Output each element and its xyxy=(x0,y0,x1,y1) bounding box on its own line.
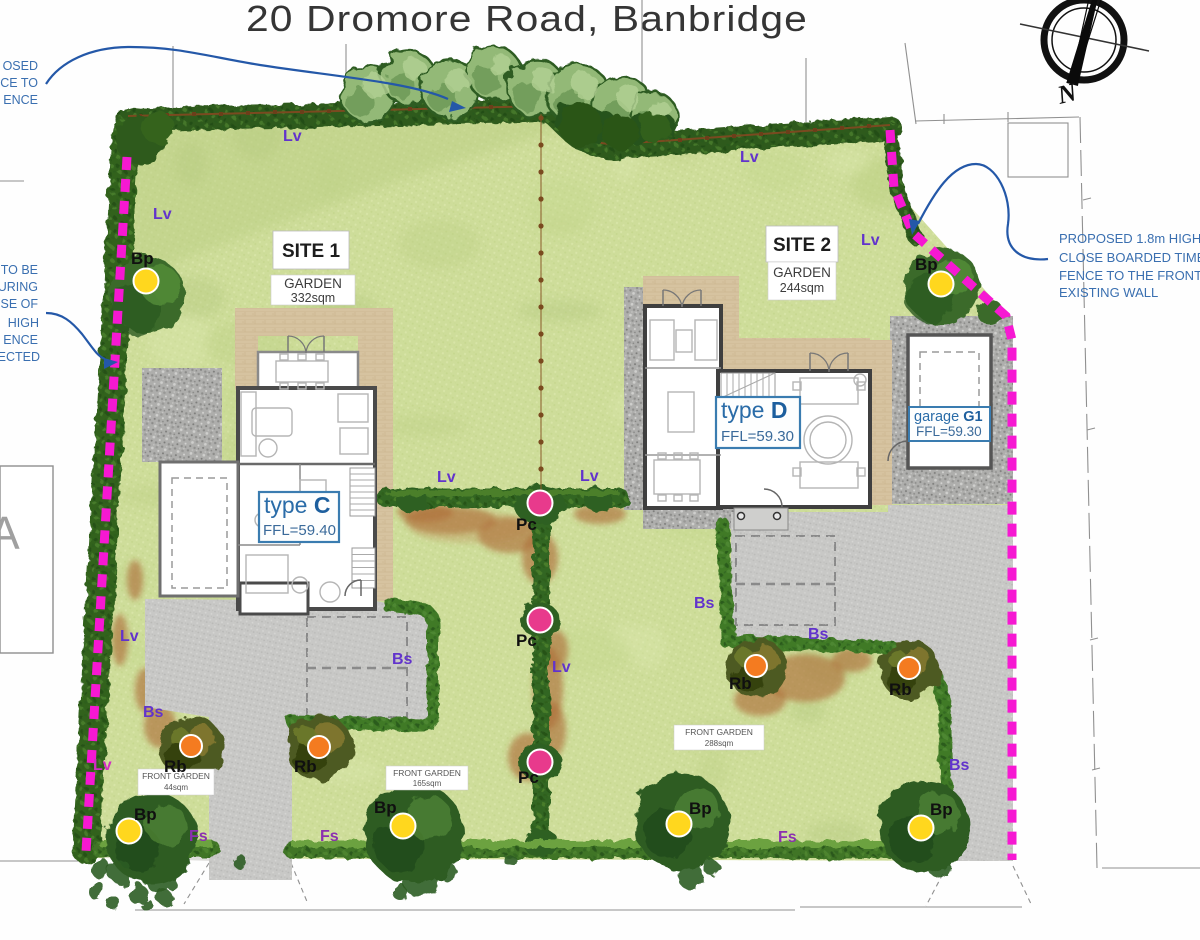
svg-text:Bp: Bp xyxy=(915,255,938,274)
svg-text:ENCE: ENCE xyxy=(3,93,38,107)
svg-text:CE TO: CE TO xyxy=(0,76,38,90)
svg-text:garage G1: garage G1 xyxy=(914,409,983,425)
svg-text:ECTED: ECTED xyxy=(0,350,40,364)
svg-text:Lv: Lv xyxy=(580,468,599,485)
svg-text:Fs: Fs xyxy=(189,828,208,845)
svg-text:Lv: Lv xyxy=(93,757,112,774)
svg-text:20 Dromore Road, Banbridge: 20 Dromore Road, Banbridge xyxy=(246,0,808,39)
svg-text:TO BE: TO BE xyxy=(1,263,38,277)
svg-text:Bp: Bp xyxy=(134,805,157,824)
svg-text:Pc: Pc xyxy=(516,515,537,534)
svg-text:Fs: Fs xyxy=(320,828,339,845)
svg-text:URING: URING xyxy=(0,280,38,294)
svg-text:Rb: Rb xyxy=(164,757,187,776)
svg-text:SITE 1: SITE 1 xyxy=(282,241,341,262)
svg-text:CLOSE BOARDED TIMBER: CLOSE BOARDED TIMBER xyxy=(1059,250,1200,265)
svg-text:SE OF: SE OF xyxy=(0,297,38,311)
svg-text:type C: type C xyxy=(264,492,331,518)
svg-text:Rb: Rb xyxy=(729,674,752,693)
svg-text:Pc: Pc xyxy=(518,768,539,787)
svg-text:FFL=59.30: FFL=59.30 xyxy=(721,428,794,445)
svg-text:Lv: Lv xyxy=(552,659,571,676)
svg-text:Bp: Bp xyxy=(689,799,712,818)
svg-text:Rb: Rb xyxy=(889,680,912,699)
svg-text:Bp: Bp xyxy=(374,798,397,817)
svg-text:Lv: Lv xyxy=(283,128,302,145)
svg-text:244sqm: 244sqm xyxy=(780,281,824,295)
svg-text:Bs: Bs xyxy=(694,595,715,612)
svg-text:PROPOSED 1.8m HIGH: PROPOSED 1.8m HIGH xyxy=(1059,231,1200,246)
svg-text:GARDEN: GARDEN xyxy=(284,276,342,291)
svg-text:165sqm: 165sqm xyxy=(413,779,442,788)
svg-text:Lv: Lv xyxy=(153,206,172,223)
svg-text:Bs: Bs xyxy=(392,651,413,668)
svg-text:OSED: OSED xyxy=(3,59,38,73)
svg-text:HIGH: HIGH xyxy=(8,316,39,330)
svg-text:SITE 2: SITE 2 xyxy=(773,235,831,256)
svg-text:Bs: Bs xyxy=(143,704,164,721)
svg-text:FRONT GARDEN: FRONT GARDEN xyxy=(393,768,461,778)
svg-text:FRONT GARDEN: FRONT GARDEN xyxy=(685,727,753,737)
svg-text:FFL=59.40: FFL=59.40 xyxy=(263,522,336,539)
svg-text:ENCE: ENCE xyxy=(3,333,38,347)
svg-text:A: A xyxy=(0,507,20,559)
svg-text:type D: type D xyxy=(721,397,788,423)
svg-text:Bp: Bp xyxy=(131,249,154,268)
svg-text:GARDEN: GARDEN xyxy=(773,265,831,280)
svg-text:Rb: Rb xyxy=(294,757,317,776)
svg-text:Lv: Lv xyxy=(120,628,139,645)
svg-text:Fs: Fs xyxy=(778,829,797,846)
svg-text:Lv: Lv xyxy=(740,149,759,166)
svg-text:332sqm: 332sqm xyxy=(291,291,335,305)
svg-text:FENCE TO THE FRONT OF: FENCE TO THE FRONT OF xyxy=(1059,268,1200,283)
svg-text:Pc: Pc xyxy=(516,631,537,650)
svg-text:Bs: Bs xyxy=(808,626,829,643)
svg-text:44sqm: 44sqm xyxy=(164,783,188,792)
svg-text:FFL=59.30: FFL=59.30 xyxy=(916,424,982,439)
svg-text:288sqm: 288sqm xyxy=(705,739,734,748)
svg-text:EXISTING WALL: EXISTING WALL xyxy=(1059,285,1158,300)
svg-text:Lv: Lv xyxy=(861,232,880,249)
svg-text:Bs: Bs xyxy=(949,757,970,774)
svg-text:Lv: Lv xyxy=(437,469,456,486)
svg-text:Bp: Bp xyxy=(930,800,953,819)
